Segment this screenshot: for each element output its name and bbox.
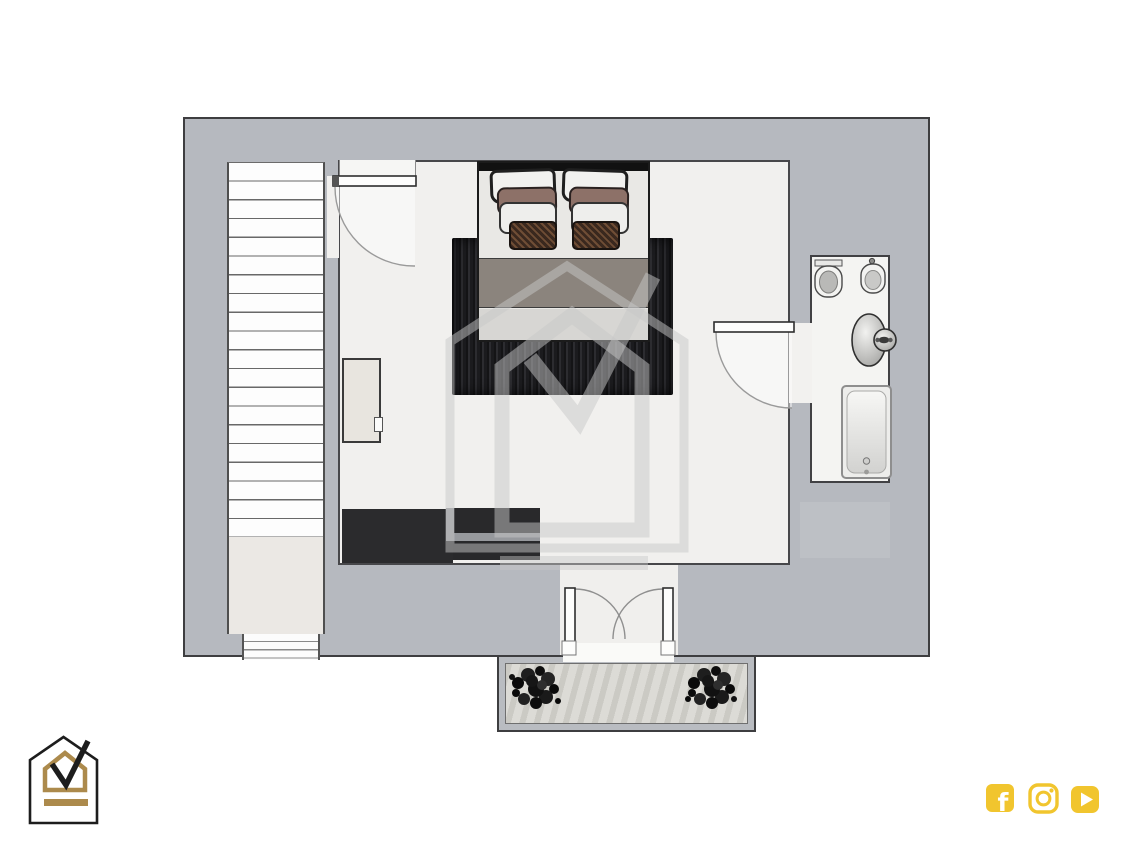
entry-door-opening: [339, 160, 416, 177]
facebook-icon[interactable]: f: [986, 784, 1014, 817]
balcony-stone-floor: [505, 663, 748, 724]
bathroom-door-opening: [789, 323, 812, 403]
bathroom-floor: [810, 255, 890, 483]
door-threshold: [563, 643, 674, 662]
bed-duvet-band: [479, 258, 648, 308]
stair-exit-steps: [242, 634, 320, 660]
stair-wall-opening: [327, 176, 339, 258]
logo-bar: [44, 799, 88, 806]
facebook-glyph: f: [998, 788, 1010, 817]
wardrobe-divider-vertical: [446, 508, 454, 541]
house-checkmark-logo[interactable]: [30, 737, 97, 823]
logo-checkmark: [52, 741, 88, 785]
bed-duvet-foot: [479, 309, 648, 340]
staircase: [227, 162, 325, 537]
cushion-right: [572, 221, 620, 250]
wall-shading-patch: [800, 502, 890, 558]
wardrobe-left: [342, 509, 453, 563]
stair-landing: [227, 537, 325, 634]
youtube-icon[interactable]: [1071, 786, 1099, 813]
cushion-left: [509, 221, 557, 250]
wardrobe-divider-horizontal: [453, 533, 540, 541]
floor-plan-canvas: f: [0, 0, 1133, 850]
dresser-handle: [374, 417, 383, 432]
instagram-icon[interactable]: [1030, 785, 1057, 812]
